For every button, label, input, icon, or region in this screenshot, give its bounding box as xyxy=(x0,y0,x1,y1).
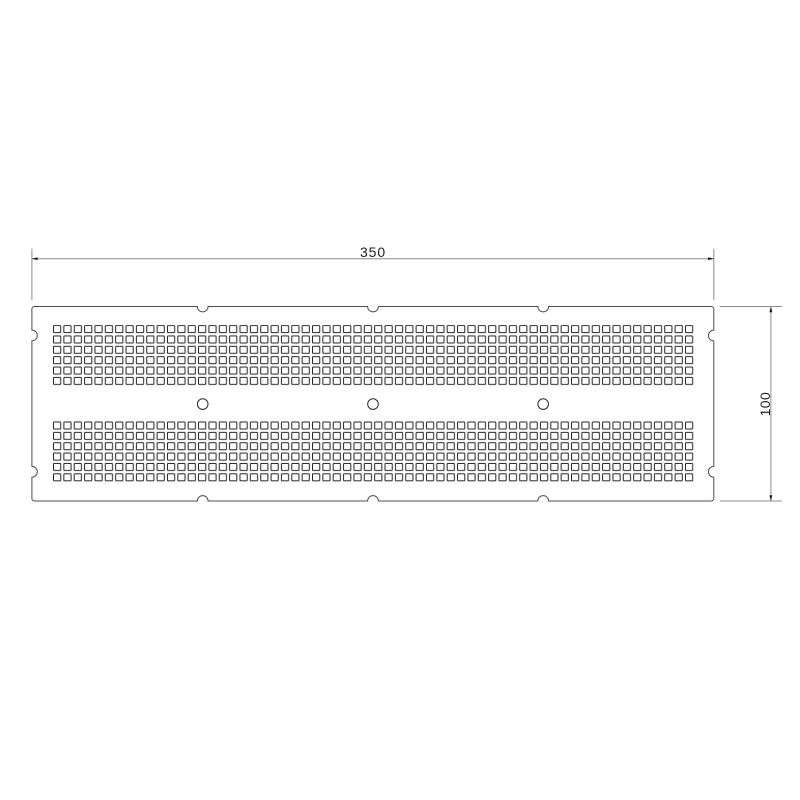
svg-text:100: 100 xyxy=(757,392,773,417)
svg-text:350: 350 xyxy=(360,244,386,260)
